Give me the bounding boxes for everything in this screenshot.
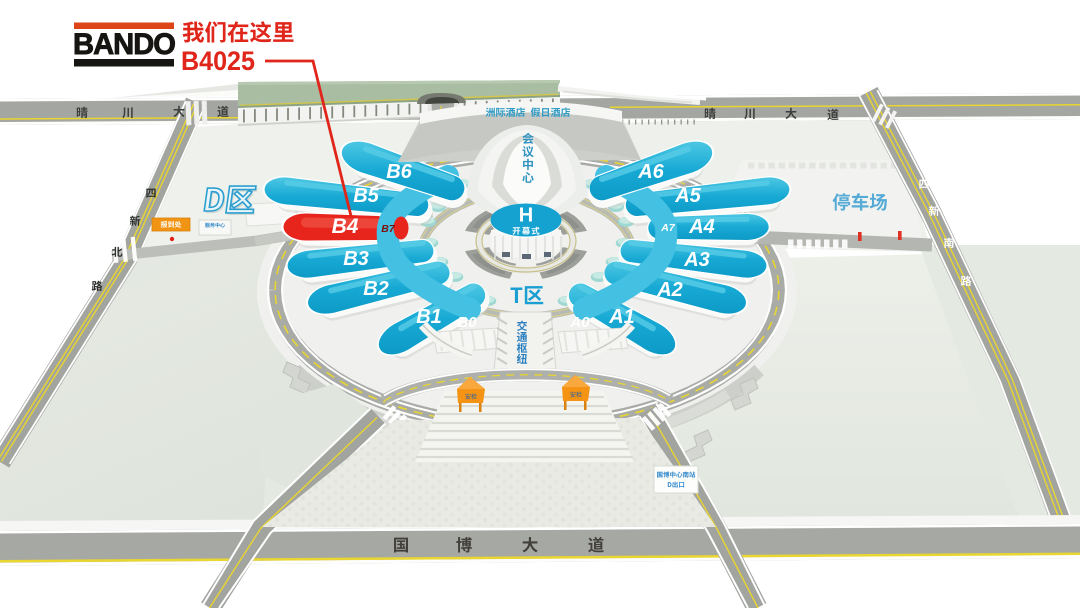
svg-text:BANDO: BANDO (73, 28, 176, 61)
svg-text:A3: A3 (683, 249, 710, 271)
svg-text:A0: A0 (569, 314, 590, 331)
svg-text:B2: B2 (363, 278, 389, 300)
svg-text:B3: B3 (343, 248, 369, 270)
svg-text:B5: B5 (353, 185, 379, 207)
svg-text:A7: A7 (660, 222, 676, 234)
svg-text:H: H (519, 205, 533, 227)
svg-text:A2: A2 (656, 279, 683, 301)
svg-text:B4025: B4025 (181, 46, 255, 76)
svg-text:A4: A4 (688, 216, 715, 238)
svg-text:B0: B0 (457, 314, 477, 331)
svg-text:A6: A6 (637, 161, 664, 183)
svg-text:B6: B6 (386, 161, 412, 183)
svg-text:B4: B4 (332, 215, 359, 238)
svg-text:A5: A5 (674, 185, 701, 207)
svg-text:安检: 安检 (570, 391, 582, 399)
svg-text:安检: 安检 (465, 393, 477, 401)
svg-text:B7: B7 (381, 223, 396, 235)
